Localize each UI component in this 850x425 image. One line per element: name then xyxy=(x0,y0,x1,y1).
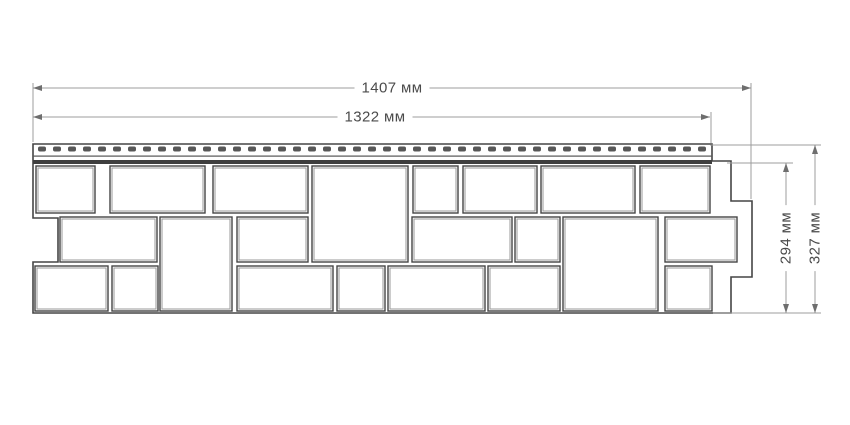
nail-slot xyxy=(203,147,211,152)
stone-block xyxy=(463,166,537,213)
nail-slot xyxy=(623,147,631,152)
nail-slot xyxy=(698,147,706,152)
stone-block xyxy=(413,166,458,213)
stone-block xyxy=(388,266,485,311)
nail-slot xyxy=(368,147,376,152)
dim-label-width-visible: 1322 мм xyxy=(338,108,413,127)
nail-slot xyxy=(503,147,511,152)
nail-slot xyxy=(638,147,646,152)
dimension-arrow xyxy=(812,145,818,154)
nail-slot xyxy=(53,147,61,152)
nail-slot xyxy=(248,147,256,152)
stone-block xyxy=(337,266,385,311)
nail-slot xyxy=(128,147,136,152)
dimension-arrow xyxy=(812,304,818,313)
dimension-arrow xyxy=(33,114,42,120)
nail-slot xyxy=(578,147,586,152)
nail-slot xyxy=(293,147,301,152)
nail-slot xyxy=(473,147,481,152)
nail-slot xyxy=(488,147,496,152)
nail-slot xyxy=(98,147,106,152)
nail-slot xyxy=(518,147,526,152)
stone-block xyxy=(213,166,308,213)
nail-slot xyxy=(563,147,571,152)
nail-slot xyxy=(188,147,196,152)
nail-slot xyxy=(428,147,436,152)
nail-slot xyxy=(383,147,391,152)
nail-slot xyxy=(158,147,166,152)
stone-block xyxy=(665,217,737,262)
stone-block xyxy=(160,217,232,311)
dimension-arrow xyxy=(701,114,710,120)
stone-block xyxy=(541,166,635,213)
dimension-arrow xyxy=(33,85,42,91)
nail-slot xyxy=(608,147,616,152)
nail-slot xyxy=(533,147,541,152)
stone-block xyxy=(515,217,560,262)
dimension-arrow xyxy=(783,304,789,313)
nail-slot xyxy=(308,147,316,152)
nail-slot xyxy=(173,147,181,152)
stone-block xyxy=(412,217,512,262)
nail-slot xyxy=(668,147,676,152)
stone-block xyxy=(563,217,658,311)
dimension-arrow xyxy=(783,163,789,172)
strip-line xyxy=(33,156,712,157)
nail-slot xyxy=(143,147,151,152)
nail-slot xyxy=(593,147,601,152)
stone-block xyxy=(35,266,108,311)
dim-label-width-total: 1407 мм xyxy=(355,79,430,98)
dim-label-height-total: 327 мм xyxy=(806,205,825,271)
nail-slot xyxy=(548,147,556,152)
stone-block xyxy=(488,266,560,311)
nail-slot xyxy=(68,147,76,152)
stone-block xyxy=(237,266,333,311)
stone-block xyxy=(112,266,158,311)
stone-block xyxy=(60,217,157,262)
nail-slot xyxy=(413,147,421,152)
nail-slot xyxy=(338,147,346,152)
nail-slot xyxy=(218,147,226,152)
stone-block xyxy=(640,166,710,213)
nail-slot xyxy=(443,147,451,152)
nail-slot xyxy=(83,147,91,152)
stone-block xyxy=(36,166,95,213)
dimension-arrow xyxy=(742,85,751,91)
nail-slot xyxy=(653,147,661,152)
nail-slot xyxy=(38,147,46,152)
panel-drawing-canvas: 1407 мм 1322 мм 294 мм 327 мм xyxy=(0,0,850,425)
nail-slot xyxy=(323,147,331,152)
stone-block xyxy=(110,166,205,213)
stone-block xyxy=(665,266,712,311)
strip-lock-band xyxy=(33,160,712,164)
nail-slot xyxy=(233,147,241,152)
nail-slot xyxy=(263,147,271,152)
nail-slot xyxy=(353,147,361,152)
nail-slot xyxy=(458,147,466,152)
nail-slot xyxy=(113,147,121,152)
stone-block xyxy=(312,166,408,262)
nail-slot xyxy=(278,147,286,152)
stone-block xyxy=(237,217,308,262)
nail-slot xyxy=(683,147,691,152)
nail-slot xyxy=(398,147,406,152)
dim-label-height-visible: 294 мм xyxy=(777,205,796,271)
siding-panel-diagram xyxy=(0,0,850,425)
